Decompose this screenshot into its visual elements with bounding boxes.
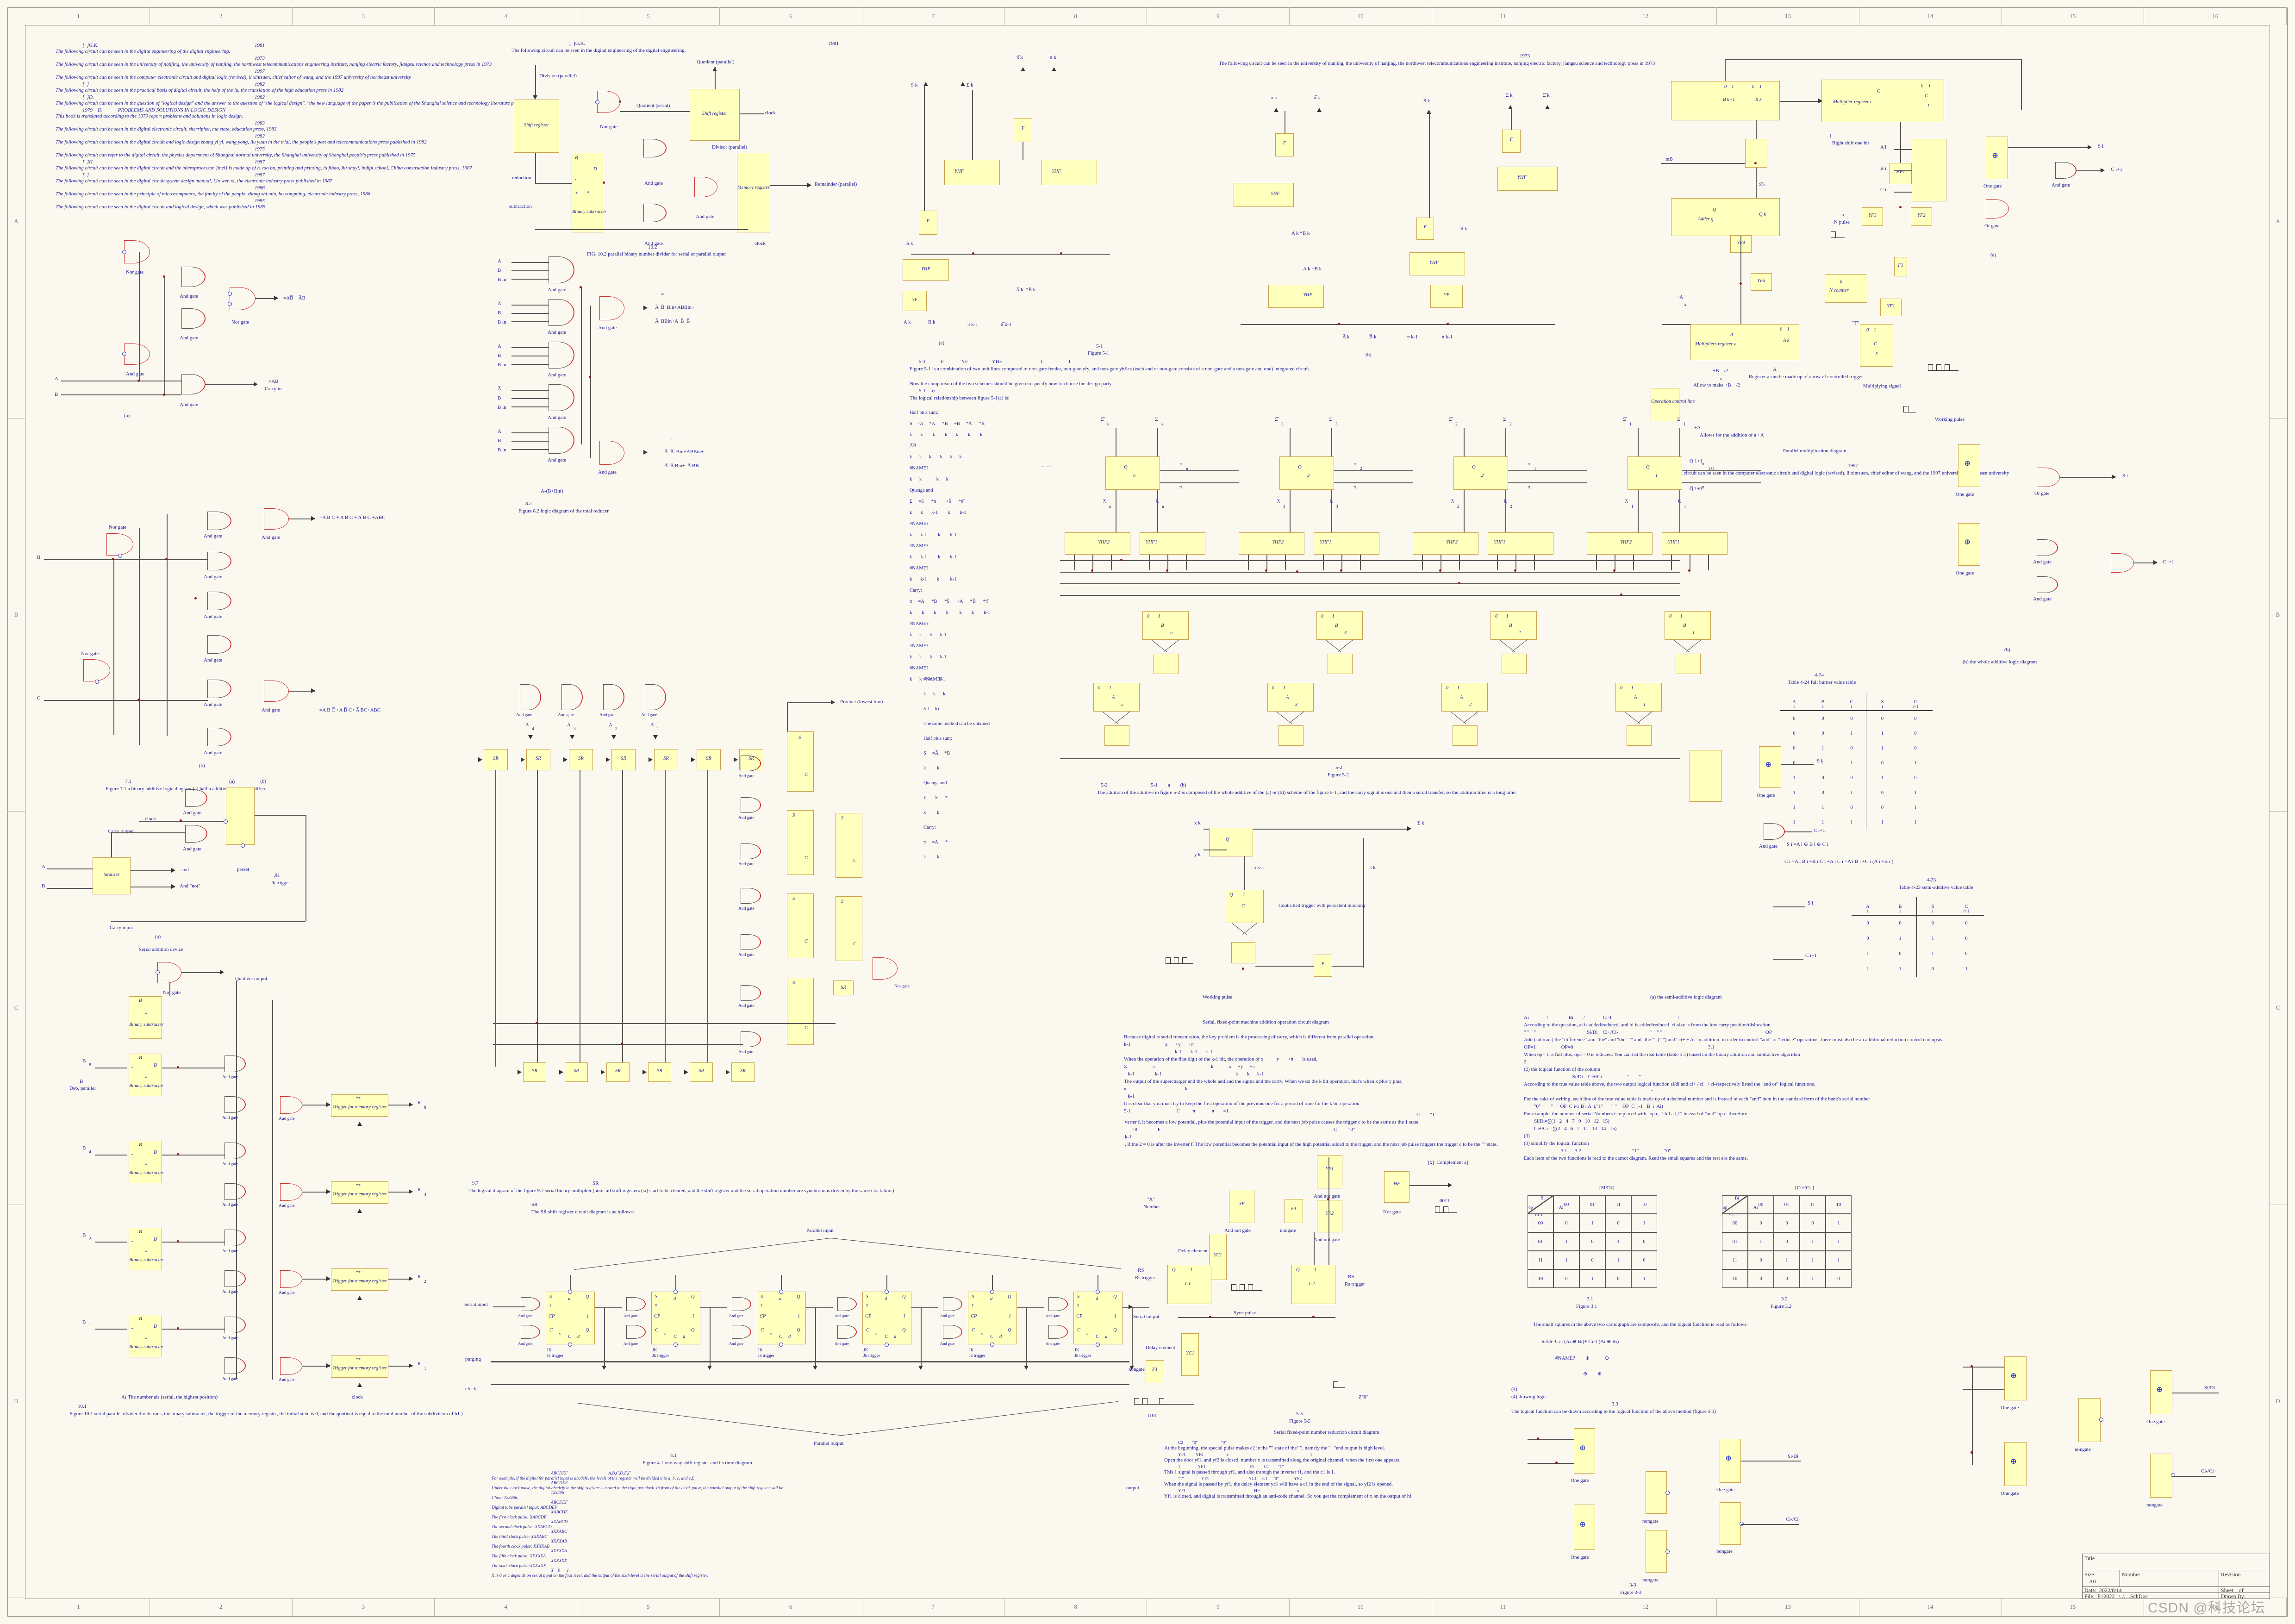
carry-output-label: =AB xyxy=(268,379,278,385)
pin-d: d xyxy=(779,1296,781,1301)
trigger-memory-label: Trigger for memory register xyxy=(331,1105,388,1110)
kmap-cell: 0 xyxy=(1605,1214,1631,1232)
t424-number: 4-24 xyxy=(1815,672,1824,678)
pulse-icon xyxy=(1231,1284,1236,1290)
xk-label: x k xyxy=(1194,820,1201,826)
title-block-size: SizeA0 xyxy=(2083,1570,2120,1587)
wire xyxy=(1123,1307,1149,1308)
c-pin: C xyxy=(804,939,808,944)
yf1-box xyxy=(1317,1155,1342,1188)
zone-number: 11 xyxy=(1432,1598,1575,1616)
clock-pulse-item: XXXABC The third clock pulse: XXXABC xyxy=(492,1530,1186,1539)
op-text-line: (3) simplify the logical function xyxy=(1524,1140,2274,1147)
wire xyxy=(1115,711,1130,724)
pin-plus: + xyxy=(131,1012,135,1017)
cell-a: 1 xyxy=(1852,962,1884,977)
c-pin: C xyxy=(804,1025,808,1031)
sr-label: SR xyxy=(611,756,636,761)
sbar-label: S̅ k xyxy=(1460,226,1467,232)
cell-c: 0 xyxy=(1837,741,1866,756)
zone-number: 11 xyxy=(1432,7,1575,25)
a-input-label: A xyxy=(567,722,571,728)
zone-number: 3 xyxy=(293,1598,435,1616)
reference-year: 1986 xyxy=(255,185,265,191)
reference-year: 1973 xyxy=(255,56,265,61)
b-register-label: B xyxy=(1161,623,1164,628)
fig51-combination-text: Figure 5-1 is a combination of two unit … xyxy=(910,366,1310,372)
binary-subtracter-box xyxy=(129,1315,162,1357)
reducer-out2-line2: A̅ B̅ Bin+ A̅ BB xyxy=(664,463,699,469)
ci1-output-label: C i+1 xyxy=(2163,559,2174,565)
kmap-cell: 0 xyxy=(1774,1269,1800,1288)
zero-one: 0 1 xyxy=(1780,327,1790,332)
cell-s: 0 xyxy=(1916,962,1949,977)
ci1-output-label: C i+1 xyxy=(2111,167,2122,173)
and-gate-label: And gate xyxy=(204,750,222,756)
zone-letter: A xyxy=(7,25,25,418)
zone-number: 10 xyxy=(1290,7,1432,25)
pin-c: C xyxy=(549,1328,553,1333)
and-gate-label: And gate xyxy=(835,1314,849,1318)
fig41-caption: Figure 4.1 one-way shift register and it… xyxy=(642,1460,752,1466)
wire xyxy=(2008,147,2091,148)
col-header: Ci xyxy=(1837,693,1866,710)
parallel-multiplication-caption: Parallel multiplication diagram xyxy=(1783,448,1846,454)
a-funnel-box xyxy=(1453,725,1478,746)
pin-s2: s xyxy=(549,1303,551,1308)
nongate-box xyxy=(2078,1398,2101,1442)
zone-number: 9 xyxy=(1147,7,1290,25)
wire xyxy=(511,390,549,391)
col-header: Bi xyxy=(1809,693,1837,710)
and-gate-label: And gate xyxy=(738,816,755,821)
wire xyxy=(1334,482,1413,483)
hdr-a-sub: i xyxy=(1794,705,1795,709)
binary-subtracter-label: Binary subtracter xyxy=(572,209,603,214)
pin-s3: s xyxy=(981,1331,983,1337)
code-out-label: 0011 xyxy=(1440,1198,1450,1204)
junction-dot xyxy=(580,286,582,288)
pulse-code: XXXXXA xyxy=(551,1549,567,1554)
wire xyxy=(511,262,549,263)
clock-pulse-item: XXXXXA The fifth clock pulse: XXXXXA xyxy=(492,1549,1186,1559)
and-gate-icon xyxy=(1048,1325,1068,1339)
and-gate-label: And gate xyxy=(222,1377,238,1382)
jk-trigger-label: Jk trigger xyxy=(758,1354,774,1359)
wire xyxy=(1671,555,1672,570)
pin-s: S xyxy=(761,1294,763,1299)
f-label: F xyxy=(919,219,937,224)
f-label: F xyxy=(1416,225,1434,230)
wire xyxy=(787,702,788,735)
divider-bit-slice: B 1 B D - + * Binary subtracter And gate… xyxy=(69,1311,523,1398)
fig33-caption: Figure 3-3 xyxy=(1620,1590,1641,1596)
invert-bubble-icon xyxy=(1665,1491,1670,1495)
reference-item: [ ] 1982 The following circuit can be se… xyxy=(56,81,542,94)
pulse-text: The fifth clock pulse: XXXXXA xyxy=(492,1554,546,1559)
kmap-cell: 1 xyxy=(1748,1232,1774,1251)
formula-line: Half plus sum: xyxy=(923,731,1062,746)
yhf2-box xyxy=(1413,532,1478,555)
junction-dot xyxy=(1338,323,1340,325)
wire xyxy=(162,1242,225,1243)
hdr-b-sub: i xyxy=(1822,705,1824,709)
wire xyxy=(1204,849,1227,850)
reference-item: [ ]D. 1982 The following circuit can be … xyxy=(56,94,542,107)
reference-text: The following circuit can be seen in the… xyxy=(56,178,332,184)
sync-pulse-label: Sync pulse xyxy=(1234,1310,1256,1316)
formula-line: Carry: xyxy=(923,820,1062,835)
c-label: C xyxy=(1877,89,1880,94)
kmap-row-header: 01 xyxy=(1528,1232,1553,1251)
and-gate-label: And gate xyxy=(279,1291,295,1296)
si-stub-label: S i xyxy=(1808,900,1813,906)
a-input-label: A xyxy=(525,722,529,728)
junction-dot xyxy=(1899,206,1902,208)
fig102-number: 10.2 xyxy=(648,244,657,250)
pulse-train-icon xyxy=(1435,1206,1457,1213)
kmap-cell: 1 xyxy=(1826,1232,1852,1251)
and-gate-label: And gate xyxy=(222,1116,238,1121)
invert-bubble-icon xyxy=(885,1290,889,1294)
pin-c2: C xyxy=(1096,1334,1099,1339)
invert-bubble-icon xyxy=(228,302,232,306)
arrow-up-icon xyxy=(1021,65,1025,71)
deb-parallel-label2: Deb, parallel xyxy=(69,1086,96,1092)
wire xyxy=(1289,711,1304,724)
sc-adder-box xyxy=(787,893,814,958)
pin-s2: s xyxy=(972,1303,973,1308)
wire xyxy=(1167,555,1168,570)
multiplying-signal-label: Multiplying signal xyxy=(1863,383,1901,389)
c-pin: C xyxy=(853,942,856,947)
invert-bubble-icon xyxy=(779,1290,783,1294)
and-gate-label: And gate xyxy=(940,1342,954,1346)
subtraction-label: subtraction xyxy=(509,204,532,210)
hdr-cy-sub: i+1 xyxy=(1964,909,1970,914)
wire xyxy=(1686,639,1702,652)
jk-trigger-label: Jk trigger xyxy=(652,1354,669,1359)
kmap-col: 00 xyxy=(1748,1195,1774,1214)
wire xyxy=(1638,490,1639,532)
wire xyxy=(491,1361,1129,1362)
cell-c: 1 xyxy=(1837,726,1866,741)
and-gate-label: And gate xyxy=(204,702,222,708)
wire xyxy=(1111,555,1112,570)
cell-b: 0 xyxy=(1809,785,1837,800)
pulse-icon xyxy=(1443,1206,1448,1212)
op-text-line: " " xyxy=(1524,1088,2274,1095)
arrow-right-icon xyxy=(254,382,260,387)
kmap-cell: 1 xyxy=(1605,1232,1631,1251)
a-register-label: A xyxy=(1460,695,1463,700)
revision-label: Revision xyxy=(2221,1571,2241,1578)
fig55-top1: verter f, it becomes a low potential, pl… xyxy=(1125,1119,1420,1125)
adder-bit-slice: Σ̅ 1 Σ 1 Q 1 π 1+1 π̅ A̅ 1 B̅ 1 YHF2 YHF… xyxy=(1587,417,1730,748)
zone-number: 7 xyxy=(862,1598,1005,1616)
binary-subtracter-box xyxy=(129,996,162,1039)
bk1-label: B k+1 xyxy=(1723,97,1735,102)
title-block: Title SizeA0 Number Revision Date: 2022/… xyxy=(2082,1554,2270,1599)
pulse-code: ABCDEF xyxy=(551,1481,568,1486)
hdr-c: C xyxy=(1850,700,1853,705)
wire xyxy=(1662,324,1690,325)
carry-in-label: Carry in xyxy=(265,386,281,392)
kmap-cell: 0 xyxy=(1553,1269,1579,1288)
schematic-sheet: 12345678910111213141516 1234567891011121… xyxy=(0,0,2295,1624)
arrow-up-icon xyxy=(923,80,928,86)
b-register-sub: 1 xyxy=(1692,631,1695,636)
and-gate-icon xyxy=(943,1325,962,1339)
jk-unit: And gate And gate S d Q s CP 1 C s C d Q… xyxy=(938,1292,1044,1373)
fig51b-header-year: 1973 xyxy=(1520,53,1530,59)
semi-adder-caption: (a) the semi-additive logic diagram xyxy=(1650,994,1722,1000)
wire xyxy=(1092,555,1093,570)
fig51b-tag: (b) xyxy=(1366,352,1372,358)
c-label: C xyxy=(1241,904,1245,909)
controlled-trigger-label: Controlled trigger with persistent block… xyxy=(1278,903,1366,909)
cell-a: 0 xyxy=(1780,741,1809,756)
pin-s3: s xyxy=(770,1331,772,1337)
wire xyxy=(139,528,140,745)
pin-one: 1 xyxy=(1009,1314,1011,1319)
pin-star: * xyxy=(144,1012,147,1017)
pin-d2: d xyxy=(683,1334,685,1339)
pin-one: 1 xyxy=(1114,1314,1116,1319)
f-label: F xyxy=(1275,141,1294,146)
arrow-right-icon xyxy=(1129,1305,1135,1309)
cell-s: 1 xyxy=(1866,741,1898,756)
kmap-corner xyxy=(1722,1195,1748,1214)
yhf-label: YHF xyxy=(1420,260,1448,265)
bbar-sub: 2 xyxy=(1510,505,1512,510)
q-sub: 1 xyxy=(1655,473,1658,478)
binary-subtracter-box xyxy=(129,1141,162,1183)
pin-c: C xyxy=(972,1328,975,1333)
pulse-text: For example, if the digital for parallel… xyxy=(492,1476,694,1481)
pin-q: Q xyxy=(691,1294,695,1299)
arrow-down-icon xyxy=(918,1366,923,1372)
junction-dot xyxy=(177,1240,179,1243)
reference-tag: [ ]H. xyxy=(82,159,94,165)
mb-label: mB xyxy=(1665,156,1673,162)
zone-number: 8 xyxy=(1004,7,1147,25)
sr-unit: SR xyxy=(523,1062,546,1082)
nongate-label: nongate xyxy=(2146,1502,2163,1508)
fig55-text-pair: "1" YF1 YC1 C1 "0" YF2 When the signal i… xyxy=(1164,1477,1627,1489)
fig52-below-frag: 5-2 5-1 a (b) xyxy=(1101,782,1186,788)
formula-line: k k xyxy=(923,806,1062,820)
fig51a-tag: (a) xyxy=(939,340,944,346)
trigger-stars: ** xyxy=(355,1357,361,1362)
yf5-label: YF5 xyxy=(1751,278,1772,283)
formula-line: Quanga and xyxy=(923,776,1062,791)
arrow-right-icon xyxy=(311,688,318,693)
b-funnel-box xyxy=(1502,654,1527,674)
junction-dot xyxy=(163,275,165,278)
pulse-code: X 0 1 xyxy=(551,1568,569,1573)
x-label: x xyxy=(1876,351,1878,356)
and-gate-label: And gate xyxy=(262,535,280,541)
pin-s2: s xyxy=(866,1303,868,1308)
pin-d2: d xyxy=(999,1334,1002,1339)
b-register-sub: n xyxy=(1170,631,1172,636)
wire xyxy=(1323,555,1324,570)
cell-s: 0 xyxy=(1866,800,1898,815)
pin-d: d xyxy=(568,1296,570,1301)
cell-a: 1 xyxy=(1780,815,1809,830)
pulse-icon xyxy=(1174,957,1179,963)
hdr-s: S xyxy=(1932,904,1934,909)
wire xyxy=(2021,59,2022,110)
s-pin: S xyxy=(798,735,801,740)
arrow-right-icon xyxy=(601,1070,607,1074)
reference-tag: [ ]G.K. xyxy=(82,43,99,48)
pin-star: * xyxy=(144,1337,147,1342)
wire xyxy=(1741,1524,1799,1525)
yhf1-label: YHF1 xyxy=(1146,540,1157,545)
col-header: Ai xyxy=(1852,897,1884,915)
q-adder-box xyxy=(1105,456,1160,490)
arrow-right-icon xyxy=(478,757,485,762)
pin-d: d xyxy=(1096,1296,1098,1301)
reduction-label: reduction xyxy=(512,175,531,181)
fig55-cap: Figure 5-5 xyxy=(1289,1418,1310,1424)
divisor-parallel-label: Divisor (parallel) xyxy=(712,144,747,150)
zone-number: 4 xyxy=(435,7,577,25)
reference-text: The following circuit can be seen in the… xyxy=(56,165,472,171)
sr-label: SR xyxy=(526,756,550,761)
sum-bar-label: Σ̅ xyxy=(1275,417,1278,423)
size-label: Size xyxy=(2084,1571,2094,1578)
a-register-sub: 2 xyxy=(1469,702,1472,707)
reducer-out1-line1: A̅ B̅ Bin+ABBin+ xyxy=(655,305,694,311)
akbk-label: A k *B k xyxy=(1291,231,1310,237)
nor-gate-label: Nor gate xyxy=(163,990,181,996)
allow-b2-label: Allow to make +B /2 xyxy=(1693,382,1740,388)
and-gate-label: And gate xyxy=(738,953,755,958)
junction-dot xyxy=(603,181,605,184)
wire xyxy=(511,406,549,407)
akbk-label: A̅ k *B̅ k xyxy=(1016,287,1035,293)
pi-out-label: π xyxy=(1179,461,1182,467)
f-label: F xyxy=(1314,962,1332,967)
invert-bubble-icon xyxy=(990,1290,994,1294)
col-header: Si xyxy=(1866,693,1898,710)
wire xyxy=(1409,1185,1451,1186)
zone-letters-right: ABCD xyxy=(2269,25,2287,1598)
hdr-b: B xyxy=(1898,904,1902,909)
reference-list: [ ]G.K. 1981 The following circuit can b… xyxy=(56,43,542,211)
fig97-header: The logical diagram of the figure 9.7 se… xyxy=(468,1188,894,1194)
cell-cy: 1 xyxy=(1898,815,1933,830)
pik1-label: π k-1 xyxy=(1442,334,1453,340)
f1-label: F1 xyxy=(1891,263,1910,268)
wire xyxy=(787,702,833,703)
wire xyxy=(1360,555,1361,570)
title-label: Title xyxy=(2084,1555,2095,1562)
n-pulse-label: N pulse xyxy=(1834,219,1850,225)
adder-bit-slice: Σ̅ 3 Σ 3 Q 3 π 2 π̅ A̅ 3 B̅ 3 YHF2 YHF1 … xyxy=(1239,417,1382,748)
pulse-icon xyxy=(1248,1284,1253,1290)
wire xyxy=(1615,555,1615,570)
sr-unit: SR xyxy=(565,1062,588,1082)
wire xyxy=(740,113,764,114)
hdr-s-sub: i xyxy=(1932,909,1933,914)
pin-q: Q xyxy=(1113,1294,1117,1299)
a-funnel-box xyxy=(1627,725,1652,746)
r-output-sub: 8 xyxy=(424,1106,426,1111)
pin-d2: d xyxy=(788,1334,791,1339)
kmap-col: 10 xyxy=(1826,1195,1852,1214)
and-gate-label: And gate xyxy=(729,1342,743,1346)
r-output-label: R xyxy=(418,1361,421,1367)
formula-line: k k k xyxy=(923,687,1062,702)
reference-text: The following circuit can be seen in the… xyxy=(56,139,427,145)
wire xyxy=(1060,758,1680,759)
fig55-text-pair: YF1 HF x Yf1 is closed, and digital is t… xyxy=(1164,1489,1627,1501)
jk-trigger-label: Jk trigger xyxy=(969,1354,985,1359)
fig82-gate-groups: A B B in And gate A̅ B B in And gate A B… xyxy=(498,256,757,468)
sc-adder-box xyxy=(836,896,862,961)
parallel-output-label: Parallel output xyxy=(814,1441,843,1447)
reference-text: The following circuit can be seen in the… xyxy=(56,87,343,93)
wire xyxy=(570,1275,571,1290)
nor-gate-label: Nor gate xyxy=(1383,1209,1401,1215)
and-gate-label: And gate xyxy=(548,372,566,378)
and-gate-label: And gate xyxy=(222,1162,238,1167)
c-cell: C xyxy=(1925,94,1928,99)
binary-subtracter-label: Binary subtracter xyxy=(129,1170,162,1175)
zone-number: 15 xyxy=(2002,1598,2145,1616)
clock-label: clock xyxy=(465,1386,476,1392)
wire xyxy=(255,815,306,816)
quotient-parallel-label: Quotient (parallel) xyxy=(697,59,735,65)
c-pin: C xyxy=(804,772,808,777)
abar-label: A̅ xyxy=(1451,499,1454,505)
wire xyxy=(1338,639,1353,652)
fig102-header-tag: [ ]G.K. xyxy=(569,41,585,47)
divider-slices: B 8 B D - + * Binary subtracter And gate… xyxy=(69,1050,523,1398)
pin-cp: CP xyxy=(1076,1314,1082,1319)
wire xyxy=(302,1105,330,1106)
t424-caption: Table 4-24 full burner value table xyxy=(1788,680,1856,686)
p33b: The logical function can be drawn accord… xyxy=(1511,1409,1716,1415)
wire xyxy=(1781,764,1814,765)
and-gate-label: And gate xyxy=(644,181,663,187)
cell-cy: 1 xyxy=(1898,785,1933,800)
q-box xyxy=(1209,828,1253,856)
zero-one: 0 1 xyxy=(1752,84,1762,89)
wire xyxy=(1785,831,1812,832)
kmap-cell: 0 xyxy=(1579,1251,1605,1269)
wire xyxy=(44,559,208,560)
junction-dot xyxy=(112,558,114,560)
wire xyxy=(131,887,175,887)
and-gate-label: And gate xyxy=(183,846,201,852)
pin-one: 1 xyxy=(903,1314,905,1319)
binary-subtracter-box xyxy=(129,1228,162,1270)
pin-d: d xyxy=(674,1296,676,1301)
wire xyxy=(1331,428,1332,456)
cell-a: 0 xyxy=(1852,931,1884,946)
n-counter-label: N counter xyxy=(1829,288,1849,293)
pulse-text: The fourth clock pulse: XXXXAB xyxy=(492,1544,549,1549)
pin-d: D xyxy=(154,1324,157,1329)
wire xyxy=(1332,966,1364,967)
xor-icon: ⊕ xyxy=(1725,1454,1732,1463)
zone-letter: D xyxy=(2269,1205,2287,1599)
